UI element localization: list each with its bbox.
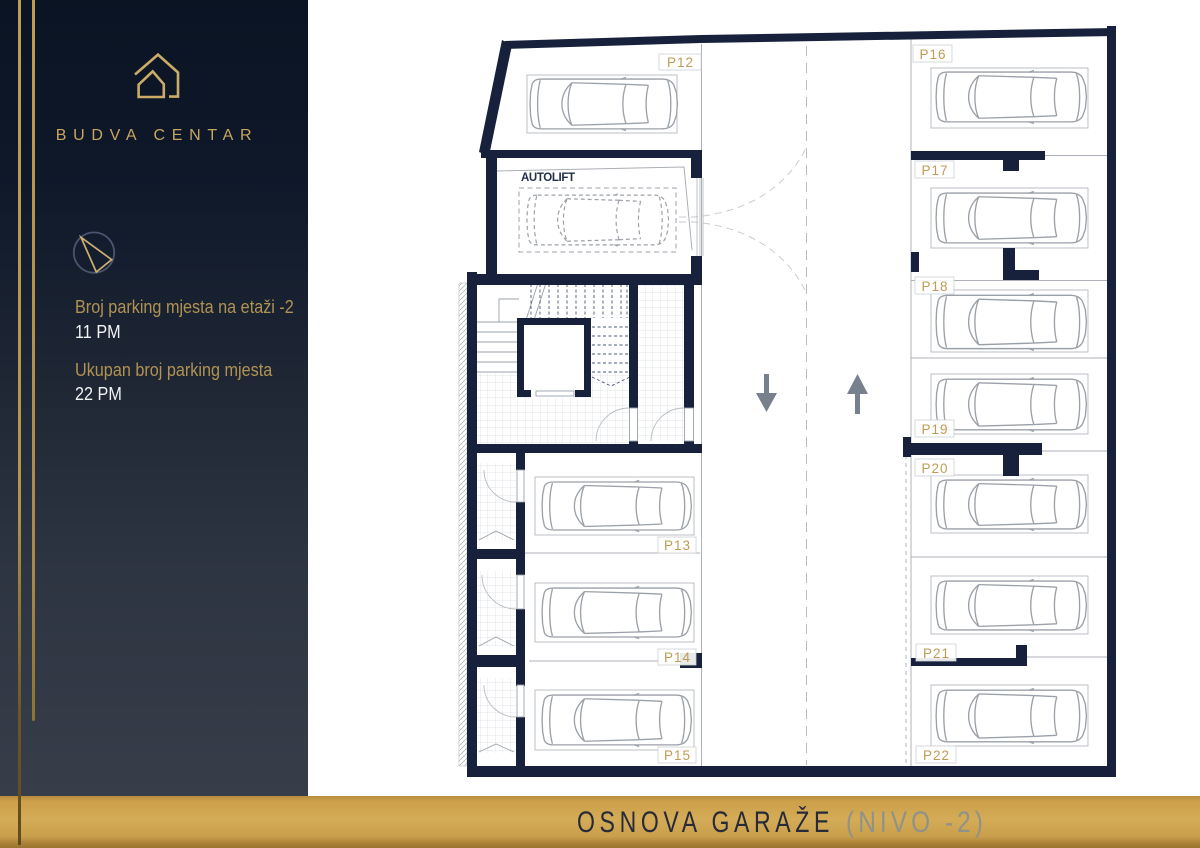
svg-text:P15: P15	[664, 748, 690, 763]
svg-text:P18: P18	[922, 279, 948, 294]
svg-text:P19: P19	[922, 422, 948, 437]
svg-text:P22: P22	[923, 748, 949, 763]
svg-text:AUTOLIFT: AUTOLIFT	[521, 172, 575, 184]
svg-text:P17: P17	[922, 163, 948, 178]
svg-text:P12: P12	[667, 55, 693, 70]
svg-text:P21: P21	[923, 646, 949, 661]
svg-text:P16: P16	[920, 47, 946, 62]
svg-text:(NIVO -2): (NIVO -2)	[846, 806, 987, 839]
svg-text:OSNOVA GARAŽE: OSNOVA GARAŽE	[577, 806, 834, 839]
svg-text:P20: P20	[922, 461, 948, 476]
svg-text:P14: P14	[664, 650, 690, 665]
svg-text:P13: P13	[664, 538, 690, 553]
